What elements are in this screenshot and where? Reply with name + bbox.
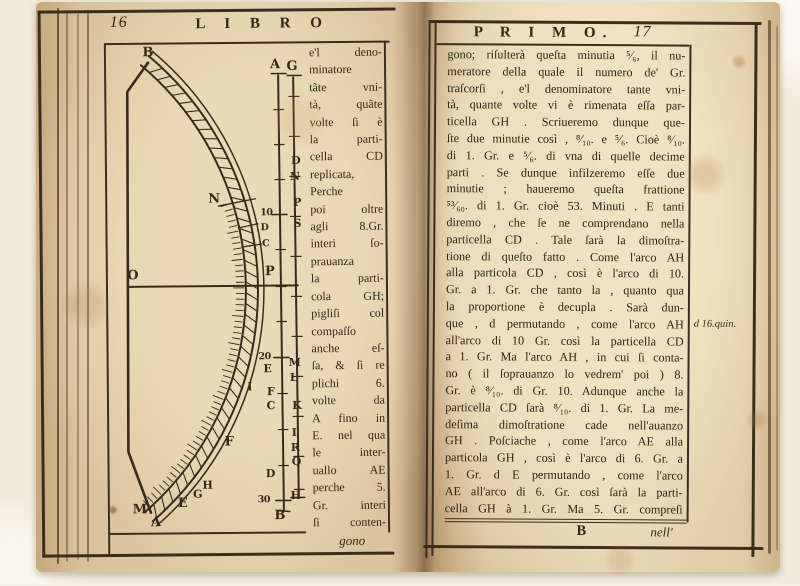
text-line: diremo , che ſe ne comprendano nella: [446, 214, 684, 232]
text-line: que , d permutando , come l'arco AH: [446, 315, 684, 333]
text-line: Gr. è ⁸⁄₁₀. di Gr. 10. Adunque anche la: [445, 382, 683, 400]
text-line: minutie ; haueremo queſta frattione: [447, 180, 685, 198]
frame-line-undertext-1: [445, 518, 687, 521]
text-line: AE all'arco di 6. Gr. così ſarà la parti…: [445, 483, 683, 501]
text-line: tione di queſto fatto . Come l'arco AH: [446, 248, 684, 266]
frame-line-outer-left-r2: [431, 22, 436, 556]
text-line: particella CD ſarà ⁸⁄₁₀. di 1. Gr. La me…: [445, 399, 683, 417]
running-title-right: P R I M O.: [464, 24, 624, 42]
catchword-right: nell': [636, 524, 686, 540]
text-line: ⁵³⁄₆₀. di 1. Gr. cioè 53. Minuti . E tan…: [446, 197, 684, 215]
text-line: Gr. a 1. Gr. che tanto la , quanto qua: [446, 281, 684, 299]
book-photo: 16 L I B R O BNOPIFHGEMAAG10DC20EFCD30BD…: [0, 0, 800, 584]
text-line: ſte due minutie così , ⁸⁄₁₀. e ⁵⁄₆. Cioè…: [447, 130, 685, 148]
page-right: P R I M O. 17 gono; riſulterà queſta min…: [0, 0, 800, 585]
text-line: traſcorſi , e'l denominatore tante vni-: [447, 80, 685, 98]
text-line: all'arco di 10 Gr. così la particella CD: [446, 332, 684, 350]
text-line: particella CD . Tale ſarà la dimoſtra-: [446, 231, 684, 249]
text-line: alla particola CD , così è l'arco di 10.: [446, 264, 684, 282]
signature-mark: B: [576, 523, 586, 540]
frame-line-bottom-r: [423, 545, 763, 550]
main-text-block: gono; riſulterà queſta minutia ⁵⁄₆, il n…: [445, 46, 686, 518]
text-line: no ( il ſoprauanzo lo vedrem' poi ) 8.: [445, 365, 683, 383]
text-line: ticella GH . Scriueremo dunque que-: [447, 113, 685, 131]
text-line: cella GH à 1. Gr. Ma 5. Gr. compreſi: [445, 500, 683, 518]
text-line: 1. Gr. d E permutando , come l'arco: [445, 466, 683, 484]
text-line: meratore della quale il numero de' Gr.: [447, 63, 685, 81]
text-line: deſima dimoſtratione cade nell'auanzo: [445, 416, 683, 434]
margin-note: d 16.quin.: [694, 319, 754, 330]
text-line: parti . Se dunque infilzeremo eſſe due: [447, 164, 685, 182]
text-line: la proportione è decupla . Sarà dun-: [446, 298, 684, 316]
text-line: di 1. Gr. e ⁵⁄₆. di vna di quelle decime: [447, 147, 685, 165]
text-line: gono; riſulterà queſta minutia ⁵⁄₆, il n…: [447, 46, 685, 64]
frame-line-text-right-r: [687, 45, 692, 523]
text-line: particola GH , così è l'arco di 6. Gr. a: [445, 449, 683, 467]
text-line: tà, quante volte vi è rimenata eſſa par-: [447, 97, 685, 115]
frame-line-outer-right-r: [751, 22, 757, 557]
text-line: GH . Poſciache , come l'arco AE alla: [445, 432, 683, 450]
page-number-right: 17: [634, 23, 652, 41]
text-line: a 1. Gr. Ma l'arco AH , in cui ſi conta-: [446, 348, 684, 366]
frame-line-outer-left-r1: [425, 20, 430, 558]
